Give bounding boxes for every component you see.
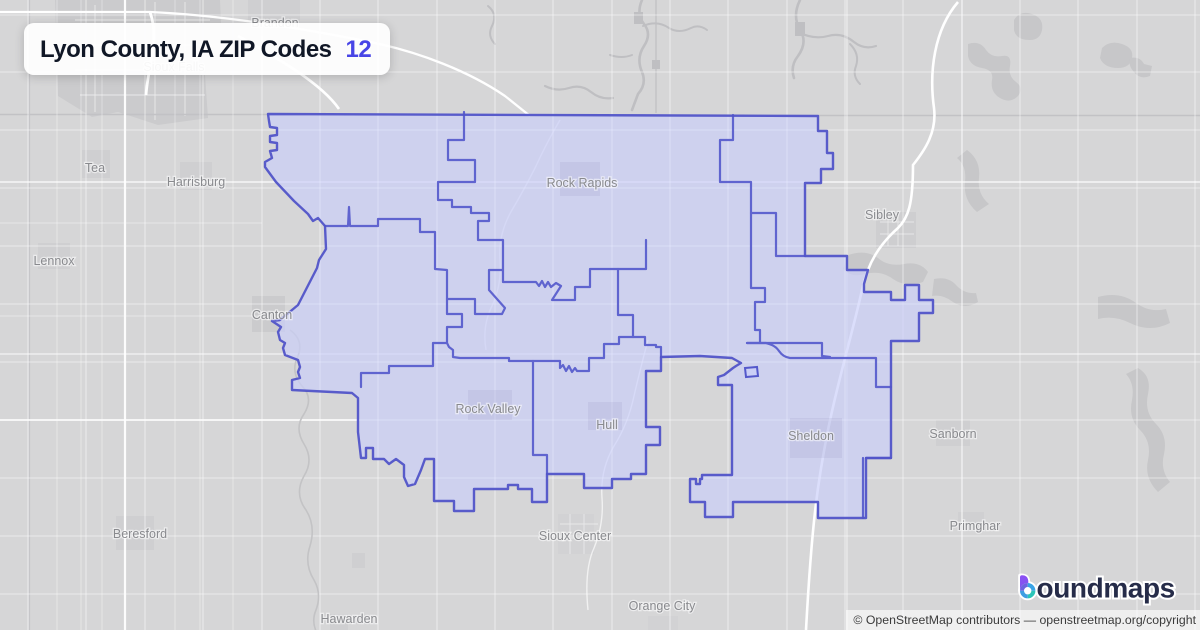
svg-text:Harrisburg: Harrisburg [167, 175, 225, 189]
svg-text:Tea: Tea [85, 161, 105, 175]
svg-text:oundmaps: oundmaps [1037, 573, 1175, 604]
svg-text:Sibley: Sibley [865, 208, 900, 222]
svg-text:Orange City: Orange City [629, 599, 696, 613]
svg-text:Hawarden: Hawarden [321, 612, 378, 626]
svg-text:Sanborn: Sanborn [929, 427, 976, 441]
svg-text:Beresford: Beresford [113, 527, 167, 541]
svg-text:Primghar: Primghar [950, 519, 1001, 533]
svg-text:Rock Valley: Rock Valley [455, 402, 521, 416]
svg-text:Lennox: Lennox [33, 254, 75, 268]
svg-text:Rock Rapids: Rock Rapids [547, 176, 618, 190]
svg-text:Sioux Center: Sioux Center [539, 529, 611, 543]
svg-text:Sheldon: Sheldon [788, 429, 834, 443]
svg-text:Hull: Hull [596, 418, 618, 432]
svg-text:Canton: Canton [252, 308, 292, 322]
